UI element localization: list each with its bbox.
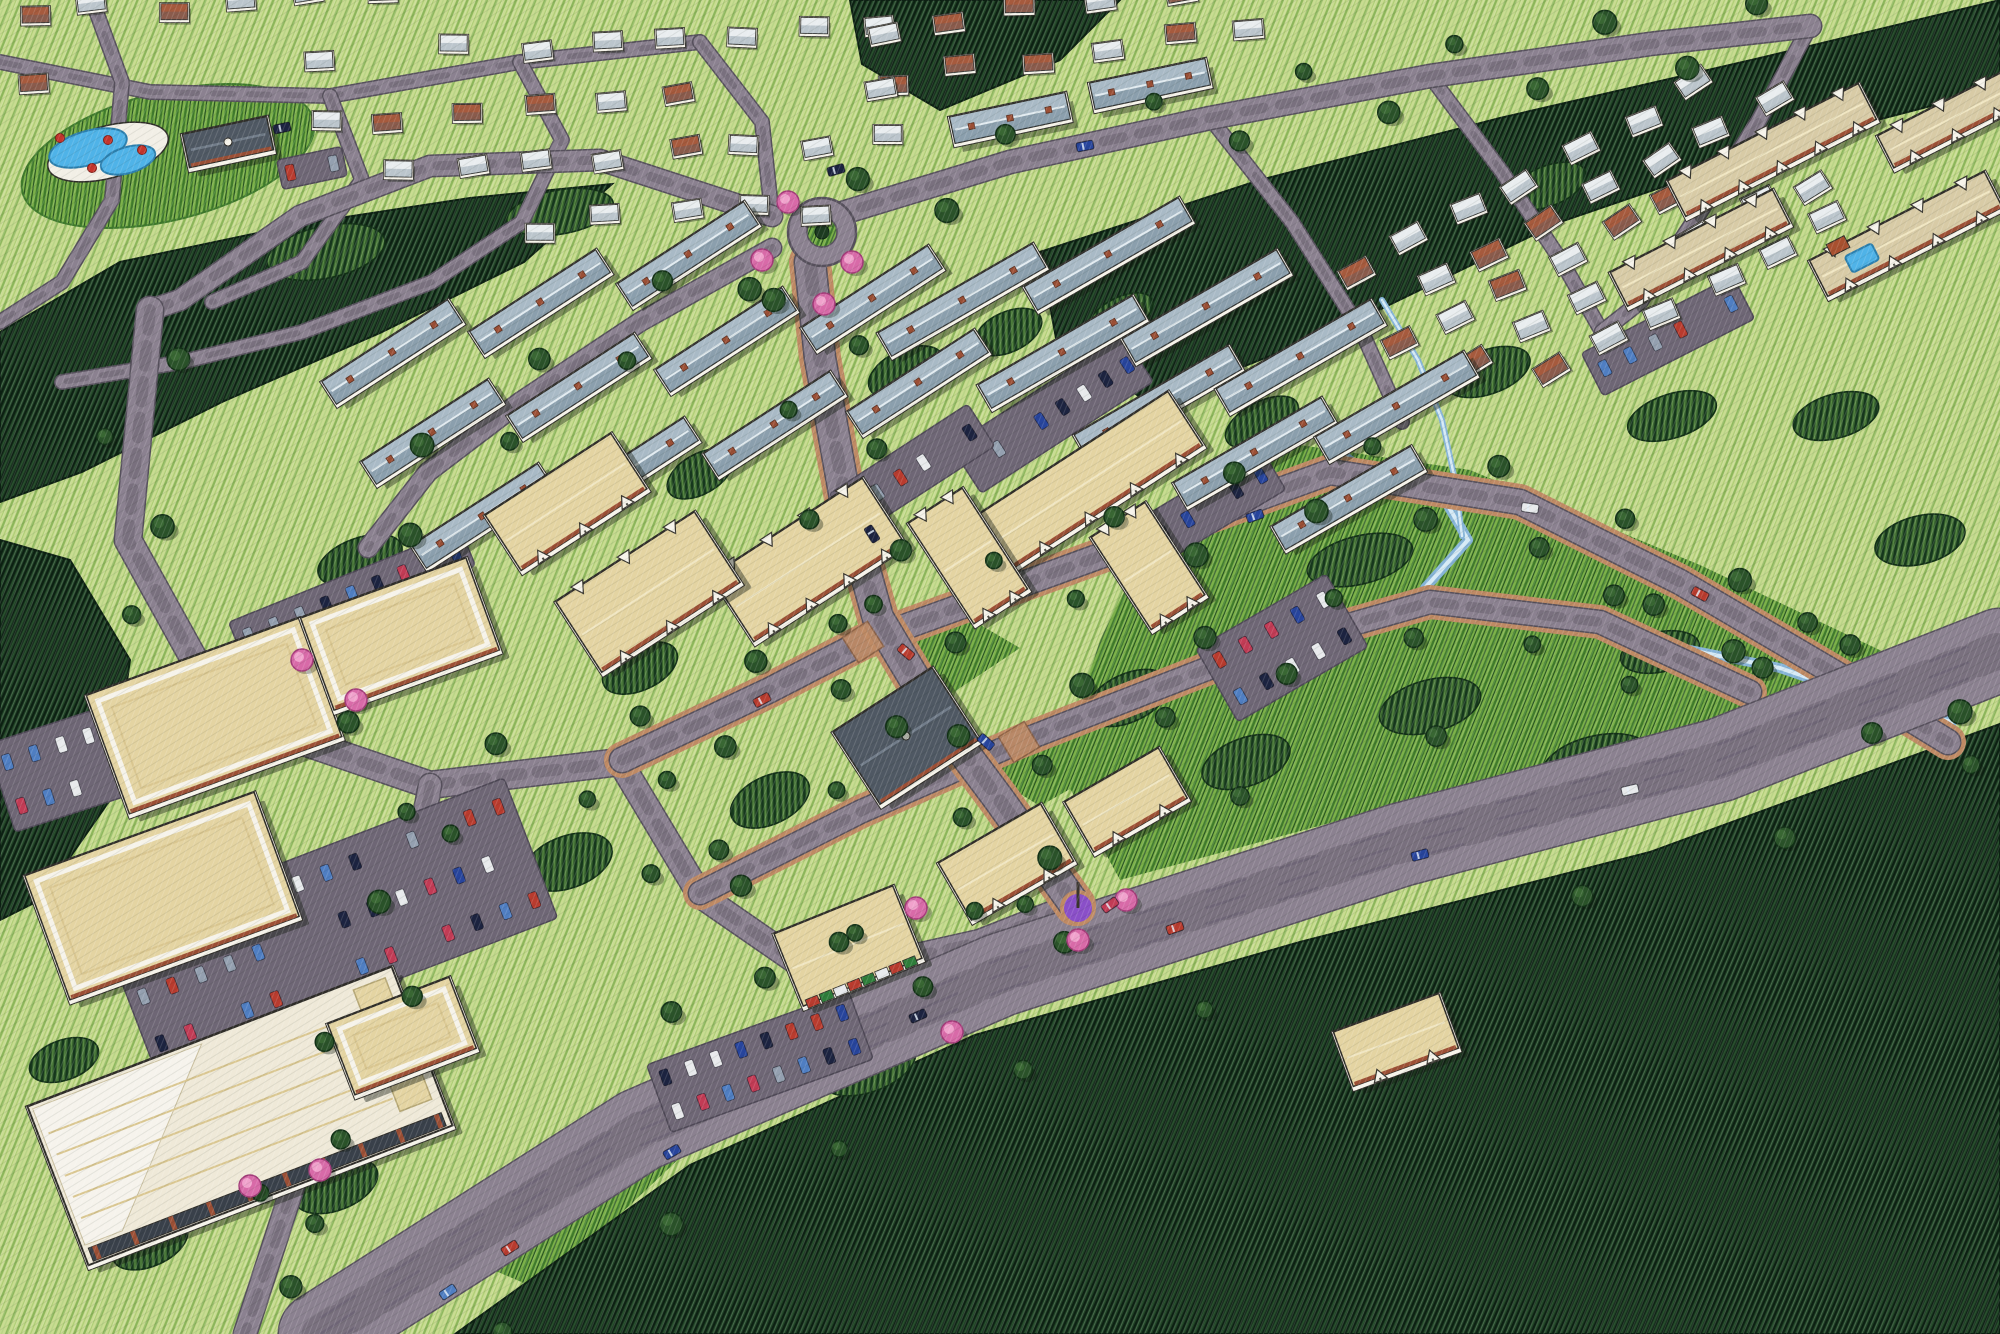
sketch-grain-layer	[0, 0, 2000, 1334]
aerial-rendering-stage: Hand-drawn aerial rendering of a mixed-u…	[0, 0, 2000, 1334]
grain-overlay-dark	[0, 0, 2000, 1334]
masterplan-aerial-illustration: Hand-drawn aerial rendering of a mixed-u…	[0, 0, 2000, 1334]
